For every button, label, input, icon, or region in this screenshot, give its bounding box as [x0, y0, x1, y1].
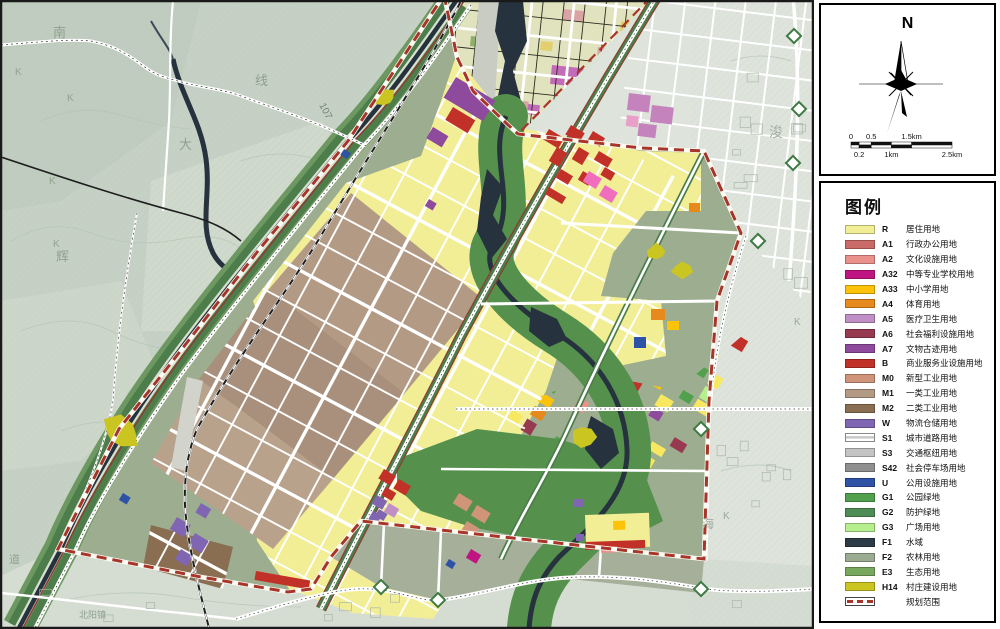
legend-code: U: [882, 478, 906, 488]
legend-item: 规划范围: [845, 594, 994, 609]
legend-swatch: [845, 270, 875, 279]
legend-label: 城市道路用地: [906, 432, 957, 444]
scale-label: 0.5: [866, 132, 876, 141]
scale-label: 0.2: [854, 150, 864, 159]
legend-item: A6社会福利设施用地: [845, 326, 994, 341]
legend-item: F2农林用地: [845, 550, 994, 565]
legend-label: 广场用地: [906, 521, 940, 533]
legend-label: 医疗卫生用地: [906, 313, 957, 325]
legend-item: M2二类工业用地: [845, 401, 994, 416]
legend-item: W物流仓储用地: [845, 416, 994, 431]
map-label: K: [53, 239, 60, 250]
legend-code: M2: [882, 403, 906, 413]
legend-item: F1水域: [845, 535, 994, 550]
legend-swatch: [845, 329, 875, 338]
compass-scale-box: N 00.51.5km0.21km2.5km: [819, 3, 996, 176]
legend-item: R居住用地: [845, 222, 994, 237]
legend-swatch: [845, 508, 875, 517]
legend-label: 体育用地: [906, 298, 940, 310]
legend-label: 行政办公用地: [906, 238, 957, 250]
map-label: 线: [255, 73, 268, 88]
legend-code: S42: [882, 463, 906, 473]
legend-swatch: [845, 538, 875, 547]
legend-label: 居住用地: [906, 223, 940, 235]
legend-code: A1: [882, 239, 906, 249]
legend-label: 生态用地: [906, 566, 940, 578]
legend-code: M1: [882, 388, 906, 398]
legend-swatch: [845, 240, 875, 249]
map-label: 南: [53, 25, 66, 40]
legend-item: A4体育用地: [845, 296, 994, 311]
legend-label: 新型工业用地: [906, 372, 957, 384]
legend-title: 图例: [845, 193, 994, 218]
legend-item: M0新型工业用地: [845, 371, 994, 386]
map-label: K: [723, 511, 730, 522]
scale-label: 0: [849, 132, 853, 141]
legend-item: G3广场用地: [845, 520, 994, 535]
map-label: K: [49, 176, 56, 187]
legend-swatch: [845, 255, 875, 264]
legend-label: 一类工业用地: [906, 387, 957, 399]
legend-swatch: [845, 553, 875, 562]
legend-code: G1: [882, 492, 906, 502]
scale-label: 1.5km: [901, 132, 921, 141]
legend-swatch: [845, 478, 875, 487]
map-label: K: [794, 317, 801, 328]
legend-code: W: [882, 418, 906, 428]
legend-item: B商业服务业设施用地: [845, 356, 994, 371]
legend-item: A32中等专业学校用地: [845, 267, 994, 282]
legend-swatch: [845, 597, 875, 606]
legend-item: G1公园绿地: [845, 490, 994, 505]
legend-code: A7: [882, 344, 906, 354]
legend-label: 社会停车场用地: [906, 462, 966, 474]
legend-item: M1一类工业用地: [845, 386, 994, 401]
legend-item: A2文化设施用地: [845, 252, 994, 267]
legend-label: 物流仓储用地: [906, 417, 957, 429]
legend-swatch: [845, 225, 875, 234]
map-label: 浚: [769, 124, 783, 140]
legend-swatch: [845, 582, 875, 591]
legend-label: 文物古迹用地: [906, 343, 957, 355]
legend-swatch: [845, 285, 875, 294]
scale-label: 2.5km: [942, 150, 962, 159]
map-label: K: [67, 93, 74, 104]
legend-code: F2: [882, 552, 906, 562]
legend-label: 水域: [906, 536, 923, 548]
legend-swatch: [845, 419, 875, 428]
map-canvas: 南大线107辉浚海北阳镇道KKKKKK: [1, 1, 813, 628]
legend-code: A5: [882, 314, 906, 324]
legend-swatch: [845, 493, 875, 502]
legend-code: A32: [882, 269, 906, 279]
legend-code: B: [882, 358, 906, 368]
map-label: 辉: [56, 249, 69, 264]
legend-box: 图例 R居住用地A1行政办公用地A2文化设施用地A32中等专业学校用地A33中小…: [819, 181, 996, 623]
legend-item: U公用设施用地: [845, 475, 994, 490]
legend-item: E3生态用地: [845, 564, 994, 579]
legend-code: A2: [882, 254, 906, 264]
map-label: 北阳镇: [79, 609, 106, 620]
legend-swatch: [845, 523, 875, 532]
legend-rows: R居住用地A1行政办公用地A2文化设施用地A32中等专业学校用地A33中小学用地…: [845, 222, 994, 609]
legend-code: A33: [882, 284, 906, 294]
map-label: 道: [9, 552, 20, 566]
legend-swatch: [845, 567, 875, 576]
planning-map-screenshot: 南大线107辉浚海北阳镇道KKKKKK N 00.51.5km0.21km2.5…: [0, 0, 1000, 629]
legend-label: 村庄建设用地: [906, 581, 957, 593]
legend-code: G3: [882, 522, 906, 532]
legend-label: 交通枢纽用地: [906, 447, 957, 459]
legend-item: A7文物古迹用地: [845, 341, 994, 356]
legend-label: 商业服务业设施用地: [906, 357, 983, 369]
legend-code: G2: [882, 507, 906, 517]
legend-swatch: [845, 374, 875, 383]
legend-code: R: [882, 224, 906, 234]
legend-swatch: [845, 299, 875, 308]
map-label: K: [15, 67, 22, 78]
map-frame: 南大线107辉浚海北阳镇道KKKKKK: [0, 0, 814, 629]
legend-item: G2防护绿地: [845, 505, 994, 520]
legend-swatch: [845, 344, 875, 353]
legend-item: A1行政办公用地: [845, 237, 994, 252]
legend-label: 规划范围: [906, 596, 940, 608]
legend-label: 文化设施用地: [906, 253, 957, 265]
legend-swatch: [845, 404, 875, 413]
legend-code: M0: [882, 373, 906, 383]
legend-code: S1: [882, 433, 906, 443]
scale-label: 1km: [884, 150, 898, 159]
legend-code: A4: [882, 299, 906, 309]
legend-label: 中小学用地: [906, 283, 949, 295]
legend-swatch: [845, 314, 875, 323]
north-label: N: [821, 15, 994, 33]
legend-swatch: [845, 448, 875, 457]
legend-code: F1: [882, 537, 906, 547]
legend-label: 农林用地: [906, 551, 940, 563]
legend-swatch: [845, 359, 875, 368]
legend-swatch: [845, 433, 875, 442]
legend-label: 中等专业学校用地: [906, 268, 974, 280]
legend-label: 社会福利设施用地: [906, 328, 974, 340]
map-label: 大: [179, 137, 192, 152]
scale-bar: 00.51.5km0.21km2.5km: [849, 132, 962, 159]
legend-label: 公用设施用地: [906, 477, 957, 489]
legend-swatch: [845, 463, 875, 472]
legend-swatch: [845, 389, 875, 398]
legend-item: S42社会停车场用地: [845, 460, 994, 475]
legend-item: S1城市道路用地: [845, 430, 994, 445]
legend-label: 二类工业用地: [906, 402, 957, 414]
legend-item: A5医疗卫生用地: [845, 311, 994, 326]
map-label: 海: [702, 516, 714, 531]
legend-code: H14: [882, 582, 906, 592]
legend-item: S3交通枢纽用地: [845, 445, 994, 460]
legend-label: 公园绿地: [906, 491, 940, 503]
legend-label: 防护绿地: [906, 506, 940, 518]
legend-code: S3: [882, 448, 906, 458]
legend-code: E3: [882, 567, 906, 577]
legend-code: A6: [882, 329, 906, 339]
legend-item: H14村庄建设用地: [845, 579, 994, 594]
legend-item: A33中小学用地: [845, 282, 994, 297]
